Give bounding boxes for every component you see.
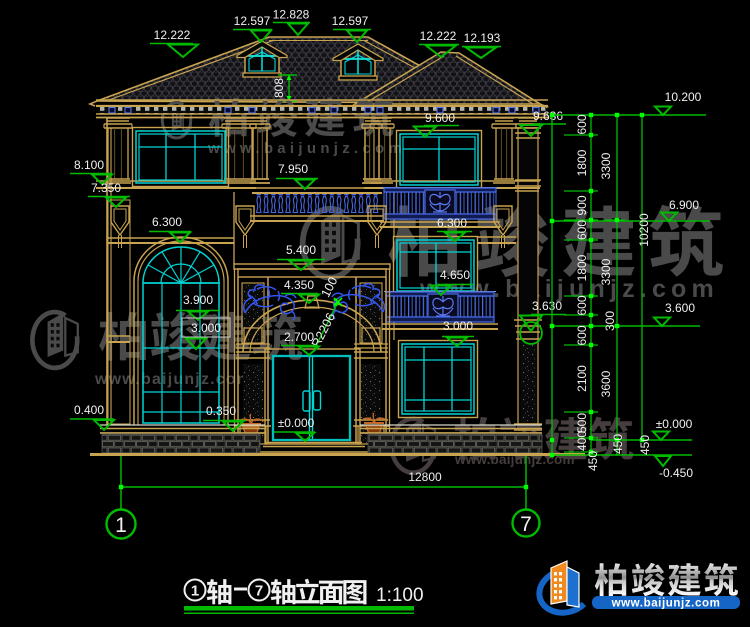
svg-text:9.636: 9.636 [533,109,563,123]
svg-text:12.597: 12.597 [332,14,369,28]
svg-text:9.600: 9.600 [425,111,455,125]
svg-text:12.222: 12.222 [420,29,457,43]
svg-text:10200: 10200 [637,213,651,247]
svg-text:1: 1 [115,514,127,537]
svg-text:6.900: 6.900 [669,198,699,212]
svg-text:www.baijunjz.com: www.baijunjz.com [611,598,721,610]
svg-text:6.300: 6.300 [437,216,467,230]
svg-text:-0.450: -0.450 [659,466,693,480]
svg-text:300: 300 [603,311,617,331]
svg-text:6.300: 6.300 [152,215,182,229]
svg-text:1: 1 [191,583,199,600]
svg-text:3600: 3600 [599,370,613,397]
svg-text:7.350: 7.350 [91,181,121,195]
svg-text:12800: 12800 [408,470,442,484]
svg-text:1800: 1800 [575,254,589,281]
svg-text:450: 450 [638,435,652,455]
svg-text:3.000: 3.000 [443,319,473,333]
svg-text:3.900: 3.900 [183,293,213,307]
svg-text:3300: 3300 [599,152,613,179]
svg-text:600: 600 [575,295,589,315]
svg-text:600: 600 [575,325,589,345]
svg-text:450: 450 [586,451,600,471]
svg-text:0.400: 0.400 [74,403,104,417]
svg-text:3.000: 3.000 [191,321,221,335]
svg-text:7: 7 [520,513,532,536]
svg-text:900: 900 [575,195,589,215]
svg-text:1800: 1800 [575,149,589,176]
svg-text:±0.000: ±0.000 [656,417,693,431]
svg-text:12.597: 12.597 [234,14,271,28]
svg-text:4.350: 4.350 [284,278,314,292]
svg-text:12.193: 12.193 [464,31,501,45]
svg-text:www.baijunjz.com: www.baijunjz.com [207,140,406,157]
svg-text:8.100: 8.100 [74,158,104,172]
svg-text:3.630: 3.630 [532,299,562,313]
svg-text:5.400: 5.400 [286,243,316,257]
svg-text:2.700: 2.700 [284,330,314,344]
svg-text:600: 600 [575,114,589,134]
svg-text:7.950: 7.950 [278,162,308,176]
svg-text:3300: 3300 [599,258,613,285]
svg-text:±0.000: ±0.000 [278,416,315,430]
svg-text:0.350: 0.350 [206,404,236,418]
svg-text:10.200: 10.200 [665,90,702,104]
svg-text:7: 7 [255,583,263,600]
svg-text:808: 808 [272,78,286,98]
svg-text:600: 600 [575,220,589,240]
svg-text:4.650: 4.650 [440,268,470,282]
svg-text:1:100: 1:100 [376,585,424,606]
svg-text:12.222: 12.222 [154,28,191,42]
svg-text:450: 450 [611,434,625,454]
svg-text:12.828: 12.828 [273,8,310,22]
svg-text:3.600: 3.600 [665,301,695,315]
svg-text:2100: 2100 [575,365,589,392]
svg-text:500: 500 [575,413,589,433]
svg-text:400: 400 [575,431,589,451]
